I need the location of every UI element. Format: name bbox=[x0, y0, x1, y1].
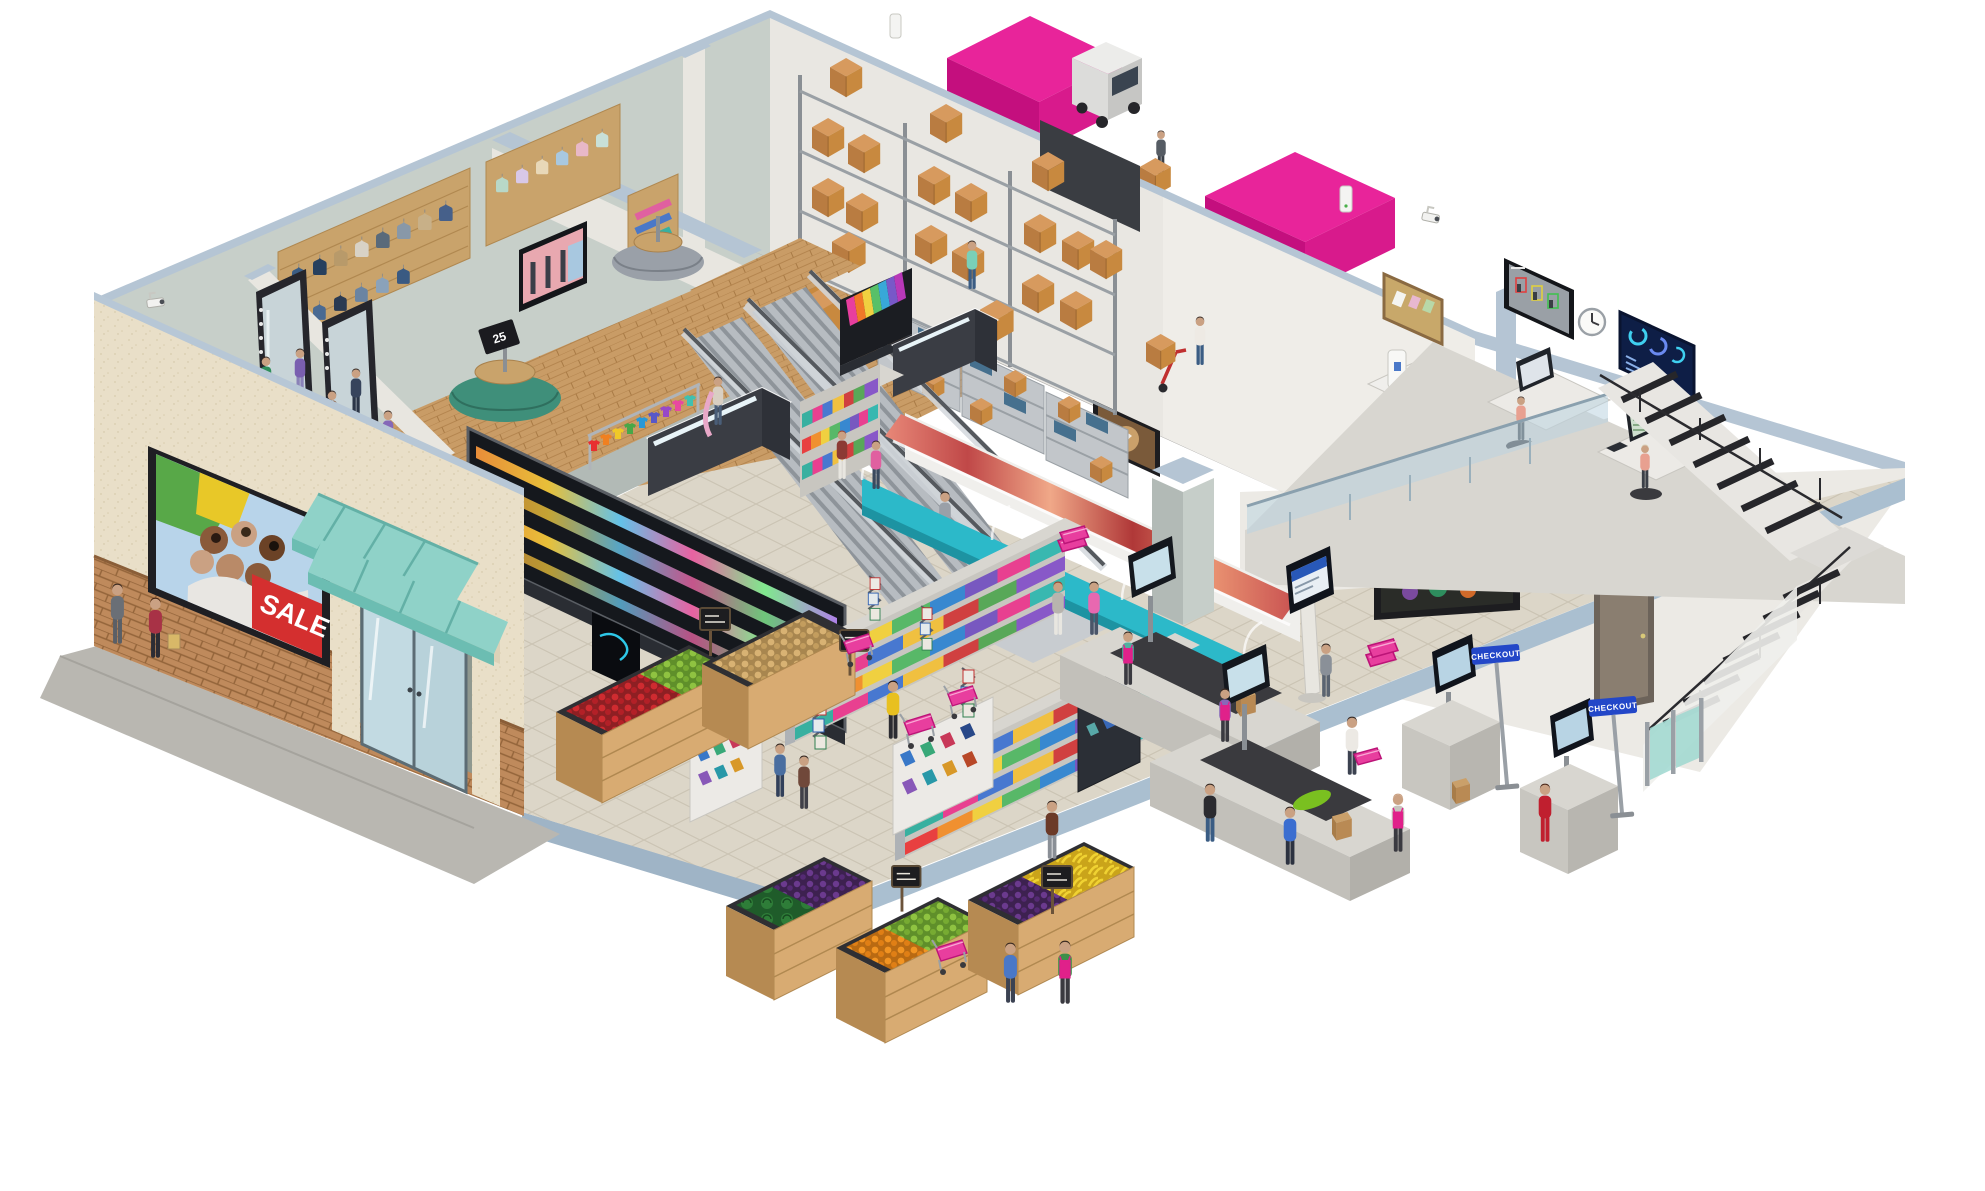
scene-canvas: 25 bbox=[0, 0, 1985, 1191]
produce-bin-plums-bananas bbox=[968, 842, 1134, 995]
office-wall-clock bbox=[1579, 309, 1605, 335]
paper-bag bbox=[1332, 812, 1352, 841]
shopper-on-phone bbox=[1004, 943, 1017, 1003]
paper-bag bbox=[1452, 778, 1470, 804]
shopper-leather-jacket bbox=[1046, 801, 1059, 859]
magazine-rack bbox=[920, 606, 932, 650]
wifi-sensor bbox=[890, 14, 901, 38]
security-camera bbox=[1422, 206, 1442, 223]
isometric-store-illustration: 25 bbox=[0, 0, 1985, 1191]
shopper-with-basket bbox=[1346, 717, 1382, 775]
magazine-rack bbox=[868, 576, 880, 620]
produce-staff bbox=[1058, 941, 1072, 1004]
wifi-sensor bbox=[1340, 186, 1352, 212]
